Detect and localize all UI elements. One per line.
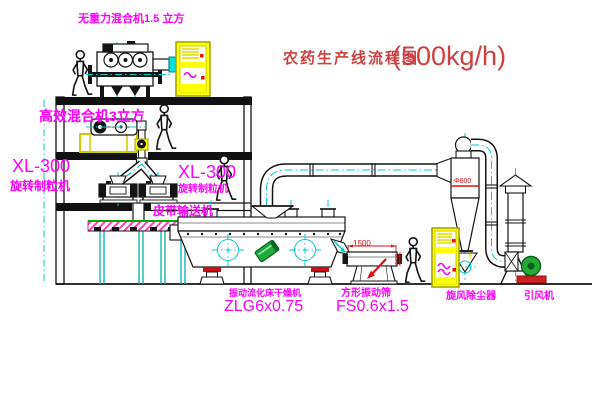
cyclone-inlet-reducer <box>437 158 452 183</box>
gravity-free-mixer <box>86 41 176 100</box>
rain-cap-icon <box>500 175 531 186</box>
rotary-granulator-2 <box>139 172 177 206</box>
dim-screen-length: 1500 <box>353 240 371 248</box>
dryer-support-pad <box>203 267 221 272</box>
label-cyclone: 旋风除尘器 <box>446 292 496 302</box>
label-high-efficiency-mixer: 高效混合机3立方 <box>39 109 145 123</box>
control-cabinet-2 <box>432 228 459 287</box>
page-title-capacity: (500kg/h) <box>392 43 506 70</box>
label-screen-model: FS0.6x1.5 <box>336 299 409 315</box>
dim-screen-height: 350 <box>395 253 402 265</box>
label-belt-conveyor: 皮带输送机 <box>153 205 213 217</box>
label-dryer-name: 振动流化床干燥机 <box>229 289 301 298</box>
induced-draft-fan <box>505 252 546 283</box>
flow-diagram: 农药生产线流程图 (500kg/h) 无重力混合机1.5 立方 高效混合机3立方… <box>0 0 600 403</box>
label-dryer-model: ZLG6x0.75 <box>224 299 303 315</box>
label-fan: 引风机 <box>524 292 554 302</box>
granulator-discharge-chute <box>133 203 144 221</box>
label-granulator-left-model: XL-300 <box>12 157 70 175</box>
label-granulator-mid-model: XL-300 <box>178 163 236 181</box>
dryer-support-pad <box>311 267 329 272</box>
control-cabinet-1 <box>176 42 210 96</box>
label-granulator-left-name: 旋转制粒机 <box>10 180 70 192</box>
worker-figure-2 <box>157 105 176 149</box>
dryer-exhaust-duct <box>252 158 452 218</box>
vibrating-screen <box>343 245 403 285</box>
dim-cyclone-diameter: Φ600 <box>454 178 471 185</box>
indicator-light-icon <box>201 76 205 80</box>
label-gravity-free-mixer: 无重力混合机1.5 立方 <box>78 14 184 25</box>
indicator-light-icon <box>453 268 457 272</box>
indicator-light-icon <box>200 54 204 58</box>
indicator-light-icon <box>452 239 456 243</box>
worker-figure-4 <box>406 238 425 282</box>
label-granulator-mid-name: 旋转制粒机 <box>178 185 228 195</box>
